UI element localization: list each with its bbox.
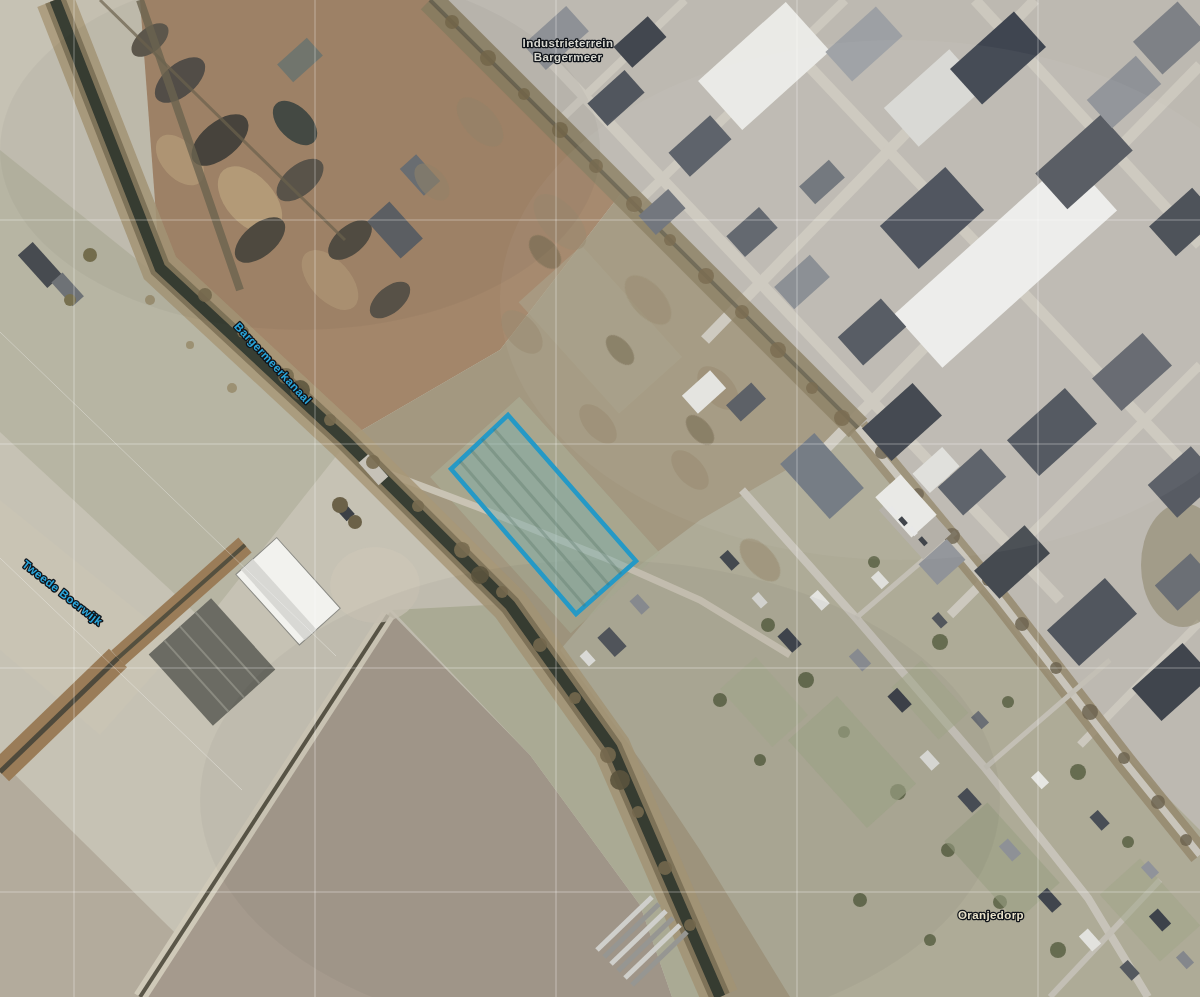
industrial-area-label-line2: Bargermeer — [534, 51, 603, 63]
village-label: Oranjedorp — [958, 909, 1024, 921]
industrial-area-label-line1: Industrieterrein — [523, 37, 614, 49]
aerial-map-viewport[interactable]: Industrieterrein Bargermeer Bargermeerka… — [0, 0, 1200, 997]
aerial-map: Industrieterrein Bargermeer Bargermeerka… — [0, 0, 1200, 997]
